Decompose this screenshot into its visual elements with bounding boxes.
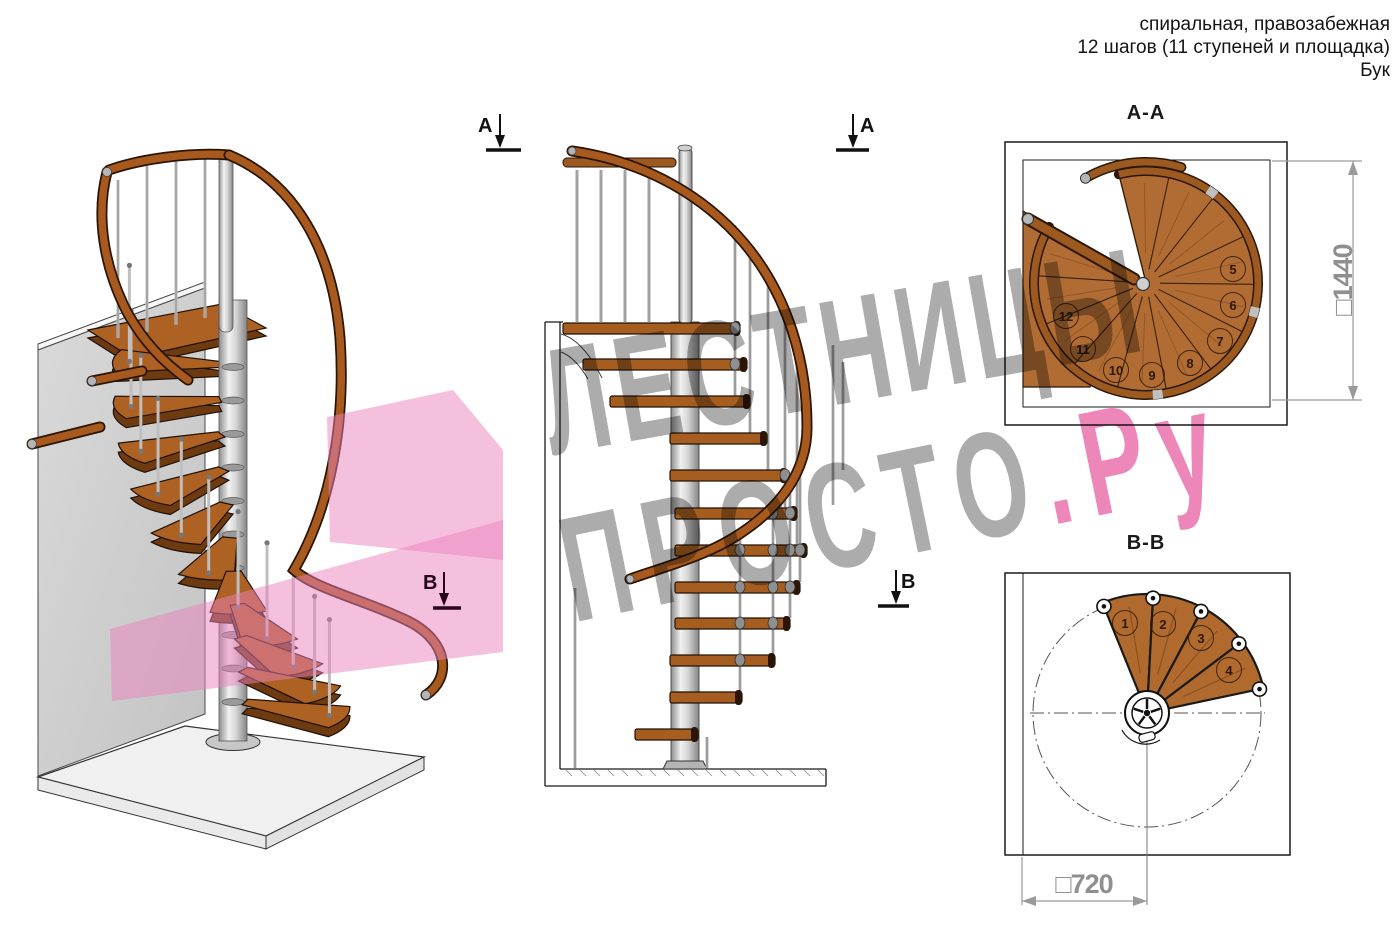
corner-bolt-center (1151, 596, 1156, 601)
rod-collar (735, 581, 745, 593)
step-end-connector (760, 431, 767, 446)
step-number-badge: 7 (1207, 328, 1233, 354)
step-number-badge: 10 (1103, 357, 1129, 383)
beam-cap (1023, 214, 1034, 225)
rail-connector (1153, 394, 1163, 395)
baluster-foot (179, 532, 184, 537)
rail-end-cap (568, 147, 576, 155)
floor-hatch (776, 770, 782, 776)
step-bar (670, 692, 742, 703)
rod-collar (785, 544, 795, 556)
floor-hatch (734, 770, 740, 776)
floor-hatch (678, 770, 684, 776)
baluster-foot (127, 359, 132, 364)
step-number-badge: 2 (1150, 611, 1176, 637)
step-end-connector (743, 394, 750, 409)
rail-end-cap (626, 575, 634, 583)
pole-collar (222, 431, 244, 438)
rod-collar (768, 544, 778, 556)
floor-hatch (580, 770, 586, 776)
rod-collar (735, 617, 745, 629)
floor-hatch (566, 770, 572, 776)
post-cap (678, 145, 692, 151)
corner-bolt-center (1102, 604, 1107, 609)
step-number-badge: 8 (1177, 350, 1203, 376)
floor-hatch (692, 770, 698, 776)
floor-hatch (720, 770, 726, 776)
rod-collar (730, 322, 740, 334)
baluster-cap (127, 263, 132, 268)
corner-bolt-center (1199, 609, 1204, 614)
elevation-view (486, 114, 909, 786)
pole-top-ball (1137, 278, 1150, 291)
rod-collar (795, 544, 805, 556)
pole-collar (222, 397, 244, 404)
rod-collar (735, 654, 745, 666)
floor-hatch (748, 770, 754, 776)
landing-bracket (561, 334, 602, 379)
baluster-foot (327, 713, 332, 718)
corner-bolt-center (1257, 687, 1262, 692)
floor-hatch (818, 770, 824, 776)
section-label-aa: А-А (1096, 102, 1196, 125)
rod-collar (785, 581, 795, 593)
rod-collar (735, 544, 745, 556)
plan-view-aa (1005, 142, 1362, 425)
section-label-bb: В-В (1096, 532, 1196, 555)
stair-drawing-sheet: спиральная, правозабежная 12 шагов (11 с… (0, 0, 1400, 931)
floor-hatch (790, 770, 796, 776)
step-bar (670, 433, 767, 444)
floor-hatch (608, 770, 614, 776)
baluster-cap (179, 436, 184, 441)
baluster-foot (138, 449, 143, 454)
rod-collar (785, 507, 795, 519)
baluster-cap (235, 509, 240, 514)
baluster-cap (138, 353, 143, 358)
step-end-connector (783, 616, 790, 631)
step-bar (563, 323, 740, 334)
step-number-badge: 9 (1139, 362, 1165, 388)
title-block: спиральная, правозабежная 12 шагов (11 с… (930, 13, 1390, 82)
floor-hatch (622, 770, 628, 776)
floor-hatch (636, 770, 642, 776)
pole-base (663, 761, 707, 769)
iso-view (28, 152, 504, 849)
baluster-foot (155, 492, 160, 497)
dimension-1440: □1440 (1328, 200, 1356, 360)
step-bar (670, 470, 787, 481)
plan-view-bb (1005, 573, 1290, 906)
pole-collar (222, 699, 244, 706)
stair-steps-count: 12 шагов (11 ступеней и площадка) (930, 36, 1390, 59)
marker-letter-a-left: А (478, 115, 492, 138)
floor-hatch (594, 770, 600, 776)
step-number-badge: 11 (1070, 336, 1096, 362)
pole-collar (222, 364, 244, 371)
rod-collar (768, 581, 778, 593)
rail-end-cap (88, 377, 97, 386)
step-end-connector (691, 727, 698, 742)
landing-post (219, 152, 233, 332)
step-bar (610, 396, 750, 407)
rail-end-cap (103, 168, 112, 177)
baluster-foot (206, 570, 211, 575)
marker-letter-b-iso: В (423, 572, 437, 595)
baluster-foot (128, 404, 133, 409)
baluster-cap (264, 540, 269, 545)
rail-end-cap (1081, 173, 1091, 183)
marker-letter-b-right: В (901, 571, 915, 594)
step-number-badge: 4 (1216, 657, 1242, 683)
rail-end-cap (422, 691, 431, 700)
rail-end-cap (28, 440, 37, 449)
floor-hatch (762, 770, 768, 776)
rod-collar (768, 617, 778, 629)
rail-connector (1253, 307, 1256, 317)
step-bar (583, 359, 747, 370)
step-number-badge: 5 (1220, 256, 1246, 282)
marker-letter-a-right: А (860, 115, 874, 138)
step-end-connector (768, 653, 775, 668)
step-number-badge: 6 (1220, 292, 1246, 318)
step-number-badge: 12 (1053, 303, 1079, 329)
floor-hatch (804, 770, 810, 776)
pole-hub-section (1122, 691, 1169, 744)
rod-collar (730, 358, 740, 370)
floor-hatch (706, 770, 712, 776)
dimension-720: □720 (1004, 869, 1164, 900)
railing-end-post (679, 148, 692, 324)
step-end-connector (740, 357, 747, 372)
baluster-cap (155, 396, 160, 401)
floor-hatch (650, 770, 656, 776)
step-bar (635, 729, 698, 740)
stair-type: спиральная, правозабежная (930, 13, 1390, 36)
step-number-badge: 1 (1112, 610, 1138, 636)
rail-connector (1208, 190, 1216, 196)
stair-material: Бук (930, 59, 1390, 82)
drawing-canvas (0, 0, 1400, 931)
step-end-connector (735, 690, 742, 705)
step-number-badge: 3 (1188, 625, 1214, 651)
baluster-foot (312, 690, 317, 695)
step-bar (675, 508, 797, 519)
corner-bolt-center (1237, 641, 1242, 646)
floor-hatch (664, 770, 670, 776)
baluster-cap (206, 474, 211, 479)
step-bar (670, 655, 775, 666)
aa-stair-plan (1023, 162, 1259, 395)
